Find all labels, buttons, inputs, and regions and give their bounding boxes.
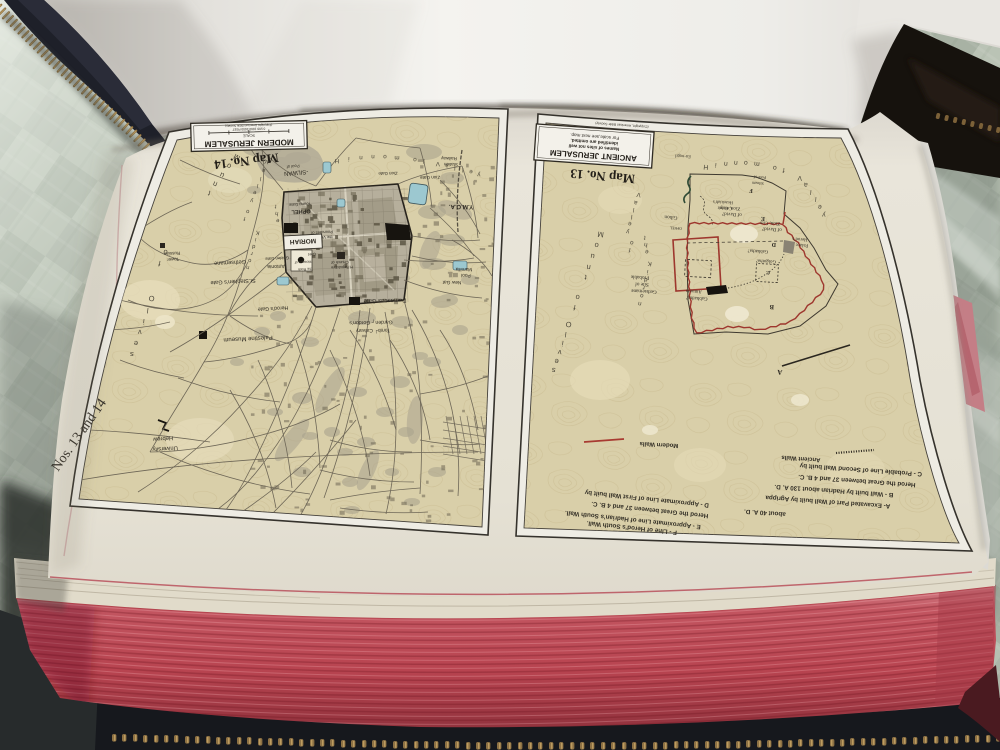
- svg-text:C: C: [766, 269, 770, 275]
- svg-text:Zion Gate: Zion Gate: [378, 171, 398, 176]
- svg-text:OPHEL: OPHEL: [669, 226, 682, 231]
- svg-text:M: M: [597, 230, 604, 240]
- svg-text:l: l: [454, 164, 456, 171]
- svg-text:En-rogel: En-rogel: [674, 154, 691, 160]
- svg-text:s: s: [130, 350, 134, 359]
- svg-text:Pool of: Pool of: [753, 175, 766, 181]
- svg-text:Siloam: Siloam: [751, 181, 764, 187]
- svg-text:Antonia: Antonia: [685, 288, 702, 294]
- svg-text:New Gat: New Gat: [442, 279, 461, 285]
- svg-text:Gret: Gret: [307, 252, 316, 257]
- svg-text:F: F: [749, 187, 753, 193]
- svg-text:Palace: Palace: [796, 242, 809, 248]
- svg-text:Mamilla: Mamilla: [455, 266, 472, 272]
- svg-text:Gihon: Gihon: [664, 214, 678, 221]
- svg-text:Antonia: Antonia: [267, 263, 285, 270]
- svg-text:Tomb┘ Calvary: Tomb┘ Calvary: [355, 327, 390, 335]
- svg-text:Railway: Railway: [440, 156, 457, 161]
- svg-text:Zion Gate: Zion Gate: [419, 175, 440, 180]
- svg-text:H: H: [703, 163, 709, 170]
- svg-text:i: i: [348, 155, 350, 162]
- svg-text:Church of: Church of: [330, 260, 348, 265]
- svg-text:Damascus Gate: Damascus Gate: [363, 297, 407, 304]
- svg-text:Golgotha?: Golgotha?: [756, 257, 776, 263]
- svg-text:e: e: [133, 339, 138, 348]
- svg-text:MORIAH: MORIAH: [289, 237, 316, 245]
- svg-text:m: m: [394, 154, 399, 161]
- svg-text:H: H: [335, 157, 340, 164]
- svg-text:m: m: [753, 160, 760, 167]
- svg-text:A: A: [777, 368, 782, 376]
- svg-text:the Rock: the Rock: [298, 267, 313, 272]
- svg-text:Y.M.C.A.: Y.M.C.A.: [448, 203, 473, 210]
- svg-text:Herod’s: Herod’s: [792, 236, 808, 242]
- svg-text:OPHEL: OPHEL: [291, 207, 311, 214]
- svg-text:Pool: Pool: [461, 272, 471, 278]
- svg-text:Tower: Tower: [166, 257, 179, 263]
- svg-text:Garden┌ Gordon’s: Garden┌ Gordon’s: [349, 319, 393, 326]
- svg-text:l: l: [462, 166, 464, 173]
- svg-text:Hezekiah’s: Hezekiah’s: [713, 199, 733, 205]
- svg-text:H.Sepulchre: H.Sepulchre: [330, 265, 353, 270]
